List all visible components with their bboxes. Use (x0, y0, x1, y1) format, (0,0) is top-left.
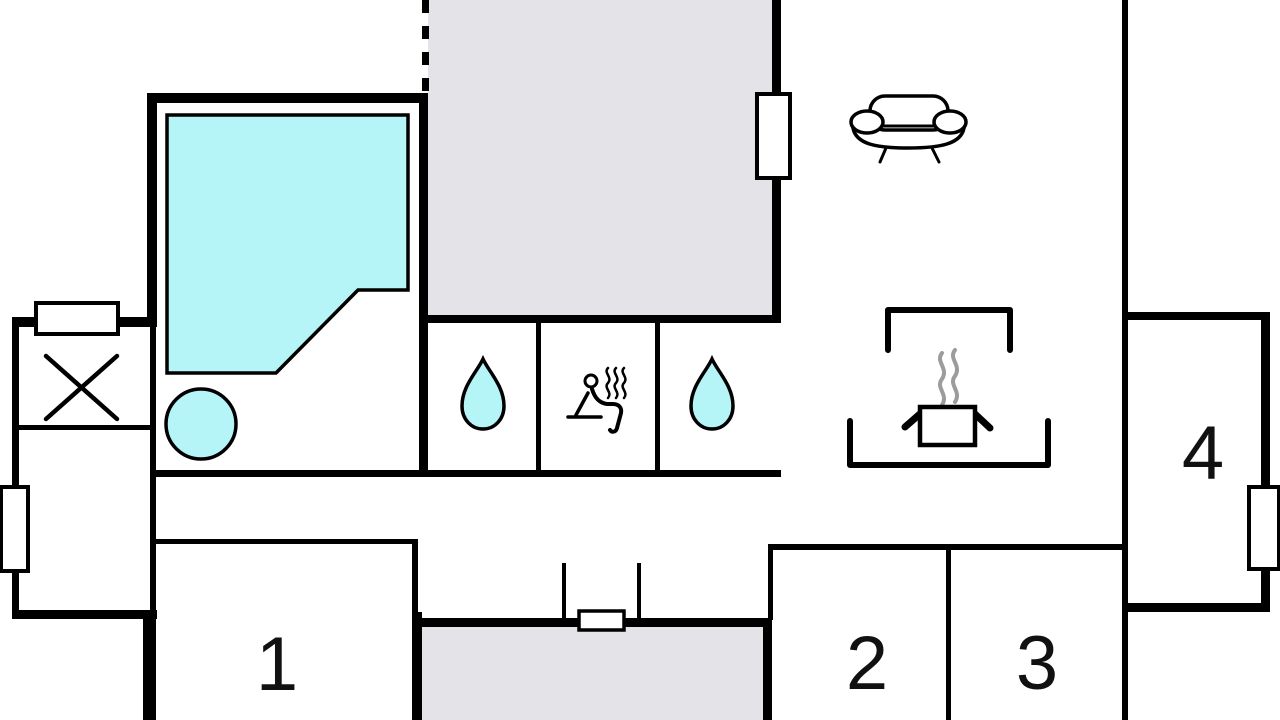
wall-segment (16, 425, 152, 430)
wall-segment (946, 547, 951, 720)
sauna-icon (568, 368, 625, 432)
wall-segment (147, 93, 157, 323)
window-icon (757, 94, 790, 178)
pot (920, 407, 975, 445)
covered-terrace-top (428, 0, 772, 315)
sauna-head (585, 375, 597, 387)
sofa-icon (851, 96, 966, 162)
window-icon (1, 487, 28, 571)
wall-segment (12, 610, 157, 619)
sofa-armrest (851, 111, 883, 133)
wall-segment (768, 544, 773, 620)
sofa-leg (932, 148, 939, 162)
crossed-box-icon (46, 356, 117, 419)
water-drop-icon (691, 359, 733, 429)
room-label-3: 3 (1016, 621, 1058, 706)
wall-segment (150, 470, 781, 477)
wall-segment (1122, 603, 1270, 612)
room-label-4: 4 (1182, 411, 1224, 496)
window-icon (36, 303, 118, 334)
floorplan-canvas: 1 2 3 4 (0, 0, 1280, 720)
wall-segment (536, 323, 541, 470)
sofa-leg (880, 148, 886, 162)
stove-icon (850, 310, 1048, 465)
swimming-pool-icon (167, 115, 408, 373)
sofa-armrest (934, 111, 966, 133)
room-label-1: 1 (256, 622, 298, 707)
steam-line (953, 350, 957, 402)
terrace-bottom (422, 627, 764, 720)
wall-segment (655, 323, 660, 470)
counter-top-bracket (888, 310, 1010, 350)
wall-segment (419, 93, 428, 477)
steam-line (940, 353, 944, 405)
door-jamb (562, 563, 566, 618)
room-label-2: 2 (846, 621, 888, 706)
wall-segment (150, 320, 156, 617)
steam-line (623, 368, 626, 398)
wall-segment (419, 315, 781, 323)
wall-segment (143, 610, 156, 720)
whirlpool-icon (166, 389, 236, 459)
window-icon (1249, 487, 1279, 569)
wall-segment (150, 539, 418, 544)
door-jamb (637, 563, 641, 618)
steam-line (607, 368, 610, 398)
wall-segment (147, 93, 428, 103)
wall-segment (763, 618, 772, 720)
sauna-arm (576, 393, 588, 415)
floorplan-svg: 1 2 3 4 (0, 0, 1280, 720)
water-drop-icon (462, 359, 504, 429)
wall-segment (1122, 312, 1270, 320)
wall-segment (412, 612, 422, 720)
door-icon (579, 611, 624, 630)
steam-line (615, 368, 618, 398)
